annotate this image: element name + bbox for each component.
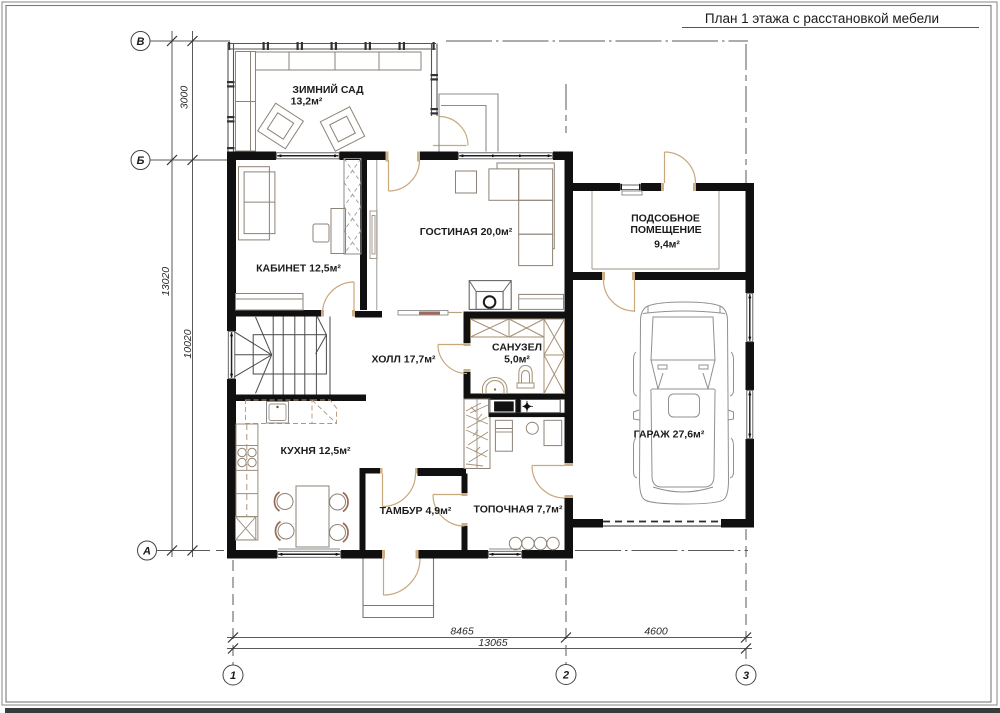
svg-text:1: 1 <box>230 670 236 682</box>
svg-text:САНУЗЕЛ: САНУЗЕЛ <box>492 342 542 354</box>
svg-text:5,0м²: 5,0м² <box>504 354 530 366</box>
svg-text:ТАМБУР 4,9м²: ТАМБУР 4,9м² <box>380 505 452 517</box>
svg-text:ГОСТИНАЯ 20,0м²: ГОСТИНАЯ 20,0м² <box>420 226 513 238</box>
svg-text:8465: 8465 <box>450 626 474 638</box>
svg-text:КАБИНЕТ 12,5м²: КАБИНЕТ 12,5м² <box>256 263 341 275</box>
svg-text:3: 3 <box>743 670 749 682</box>
svg-text:3000: 3000 <box>179 86 191 110</box>
svg-text:10020: 10020 <box>182 329 194 358</box>
svg-text:А: А <box>142 546 151 558</box>
svg-text:ЗИМНИЙ САД: ЗИМНИЙ САД <box>292 83 364 96</box>
svg-text:4600: 4600 <box>644 626 668 638</box>
svg-text:13065: 13065 <box>478 637 507 649</box>
svg-text:13020: 13020 <box>160 267 172 296</box>
svg-text:ХОЛЛ 17,7м²: ХОЛЛ 17,7м² <box>372 354 436 366</box>
svg-text:ПОМЕЩЕНИЕ: ПОМЕЩЕНИЕ <box>630 224 701 236</box>
svg-text:9,4м²: 9,4м² <box>654 239 680 251</box>
svg-text:ГАРАЖ 27,6м²: ГАРАЖ 27,6м² <box>634 429 705 441</box>
svg-text:В: В <box>137 36 145 48</box>
svg-text:КУХНЯ 12,5м²: КУХНЯ 12,5м² <box>281 445 351 457</box>
svg-text:Б: Б <box>137 155 145 167</box>
svg-text:2: 2 <box>562 670 569 682</box>
svg-text:13,2м²: 13,2м² <box>291 96 323 108</box>
svg-text:ТОПОЧНАЯ 7,7м²: ТОПОЧНАЯ 7,7м² <box>474 504 563 516</box>
svg-text:План 1 этажа с расстановкой ме: План 1 этажа с расстановкой мебели <box>705 11 939 26</box>
svg-text:ПОДСОБНОЕ: ПОДСОБНОЕ <box>631 213 700 225</box>
